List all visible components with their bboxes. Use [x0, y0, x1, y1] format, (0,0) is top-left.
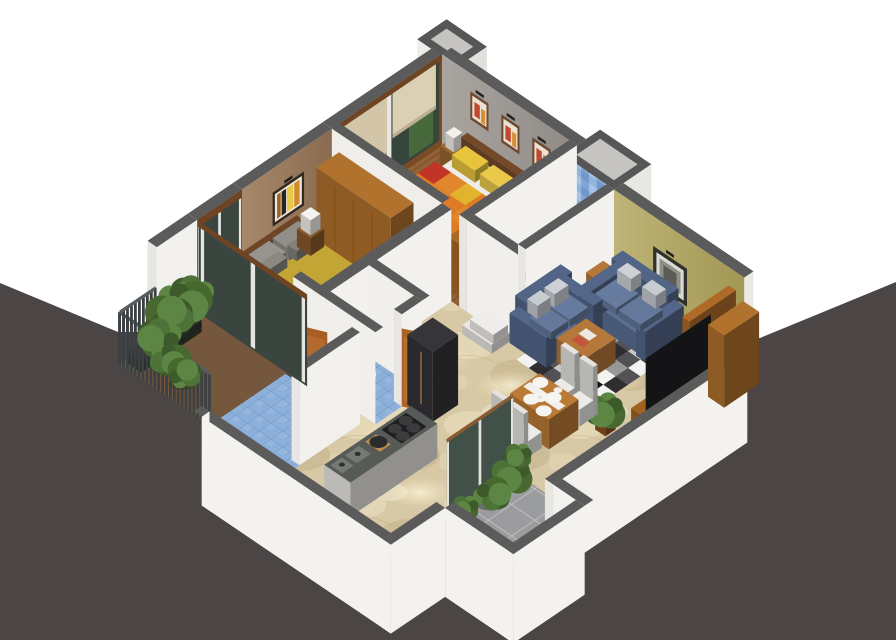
dinner-plate: [546, 392, 562, 403]
stove-burner: [406, 423, 420, 433]
stove-burner: [396, 431, 410, 441]
tea-cup: [553, 387, 562, 393]
isometric-scene-svg: [0, 0, 896, 640]
sink-drain: [339, 463, 345, 467]
floor-plan-render: [0, 0, 896, 640]
dinner-plate: [532, 377, 548, 388]
sink-drain: [355, 452, 361, 456]
teapot-lid: [538, 396, 542, 399]
dinner-plate: [536, 405, 552, 416]
cooking-pan: [369, 436, 387, 448]
refrigerator: [407, 318, 458, 422]
